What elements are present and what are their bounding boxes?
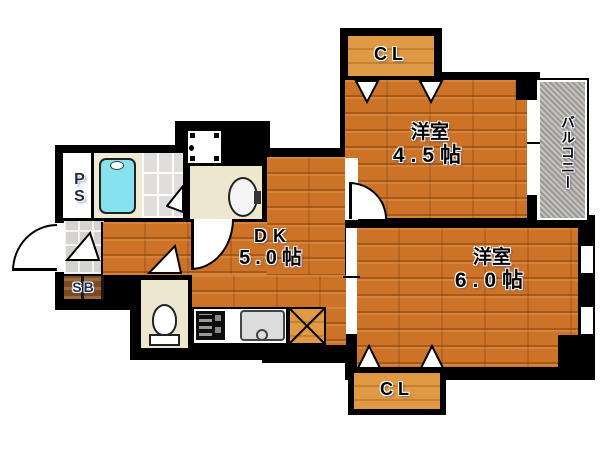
closet-top-label: CL [348, 44, 434, 65]
closet-bottom-folding-door-icon [355, 344, 447, 370]
front-door-swing-arc-icon [12, 224, 57, 271]
sliding-door-tick [343, 276, 360, 278]
dk-floor-lower [192, 275, 347, 309]
dining-kitchen-size: 5.0帖 [212, 247, 334, 270]
floor-plan: バルコニー PS SB [0, 0, 600, 450]
western-room-45-label: 洋室 4.5帖 [330, 122, 530, 168]
bath-door-icon [166, 185, 184, 213]
room60-window-lower [581, 307, 593, 334]
western-room-45-name: 洋室 [330, 122, 530, 144]
pipe-space-label: PS [68, 163, 88, 213]
western-room-60-size: 6.0帖 [382, 269, 600, 293]
closet-top-folding-door-icon [352, 80, 444, 104]
washing-machine-pan-icon [186, 129, 223, 165]
entrance-step-triangle [64, 231, 102, 262]
sliding-door [346, 228, 357, 334]
toilet-tank [149, 334, 180, 346]
western-room-45-size: 4.5帖 [330, 144, 530, 168]
western-room-60-name: 洋室 [382, 247, 600, 269]
bathtub-drain [110, 161, 124, 170]
refrigerator-x-icon [288, 307, 326, 345]
stove-icon [196, 311, 225, 340]
pillar-room45 [516, 80, 537, 100]
shoe-box-label: SB [64, 279, 104, 295]
wash-basin-faucet [254, 191, 261, 204]
dining-kitchen-name: DK [212, 226, 334, 247]
closet-bottom-label: CL [354, 379, 440, 400]
toilet-icon [152, 304, 177, 336]
toilet-door-triangle [147, 244, 183, 275]
balcony-label: バルコニー [548, 92, 576, 212]
dk-floor-kitchen-right [326, 307, 346, 345]
dining-kitchen-label: DK 5.0帖 [212, 226, 334, 270]
kitchen-sink-faucet [256, 329, 268, 341]
western-room-60-label: 洋室 6.0帖 [382, 247, 600, 293]
pillar-room60 [558, 335, 583, 367]
